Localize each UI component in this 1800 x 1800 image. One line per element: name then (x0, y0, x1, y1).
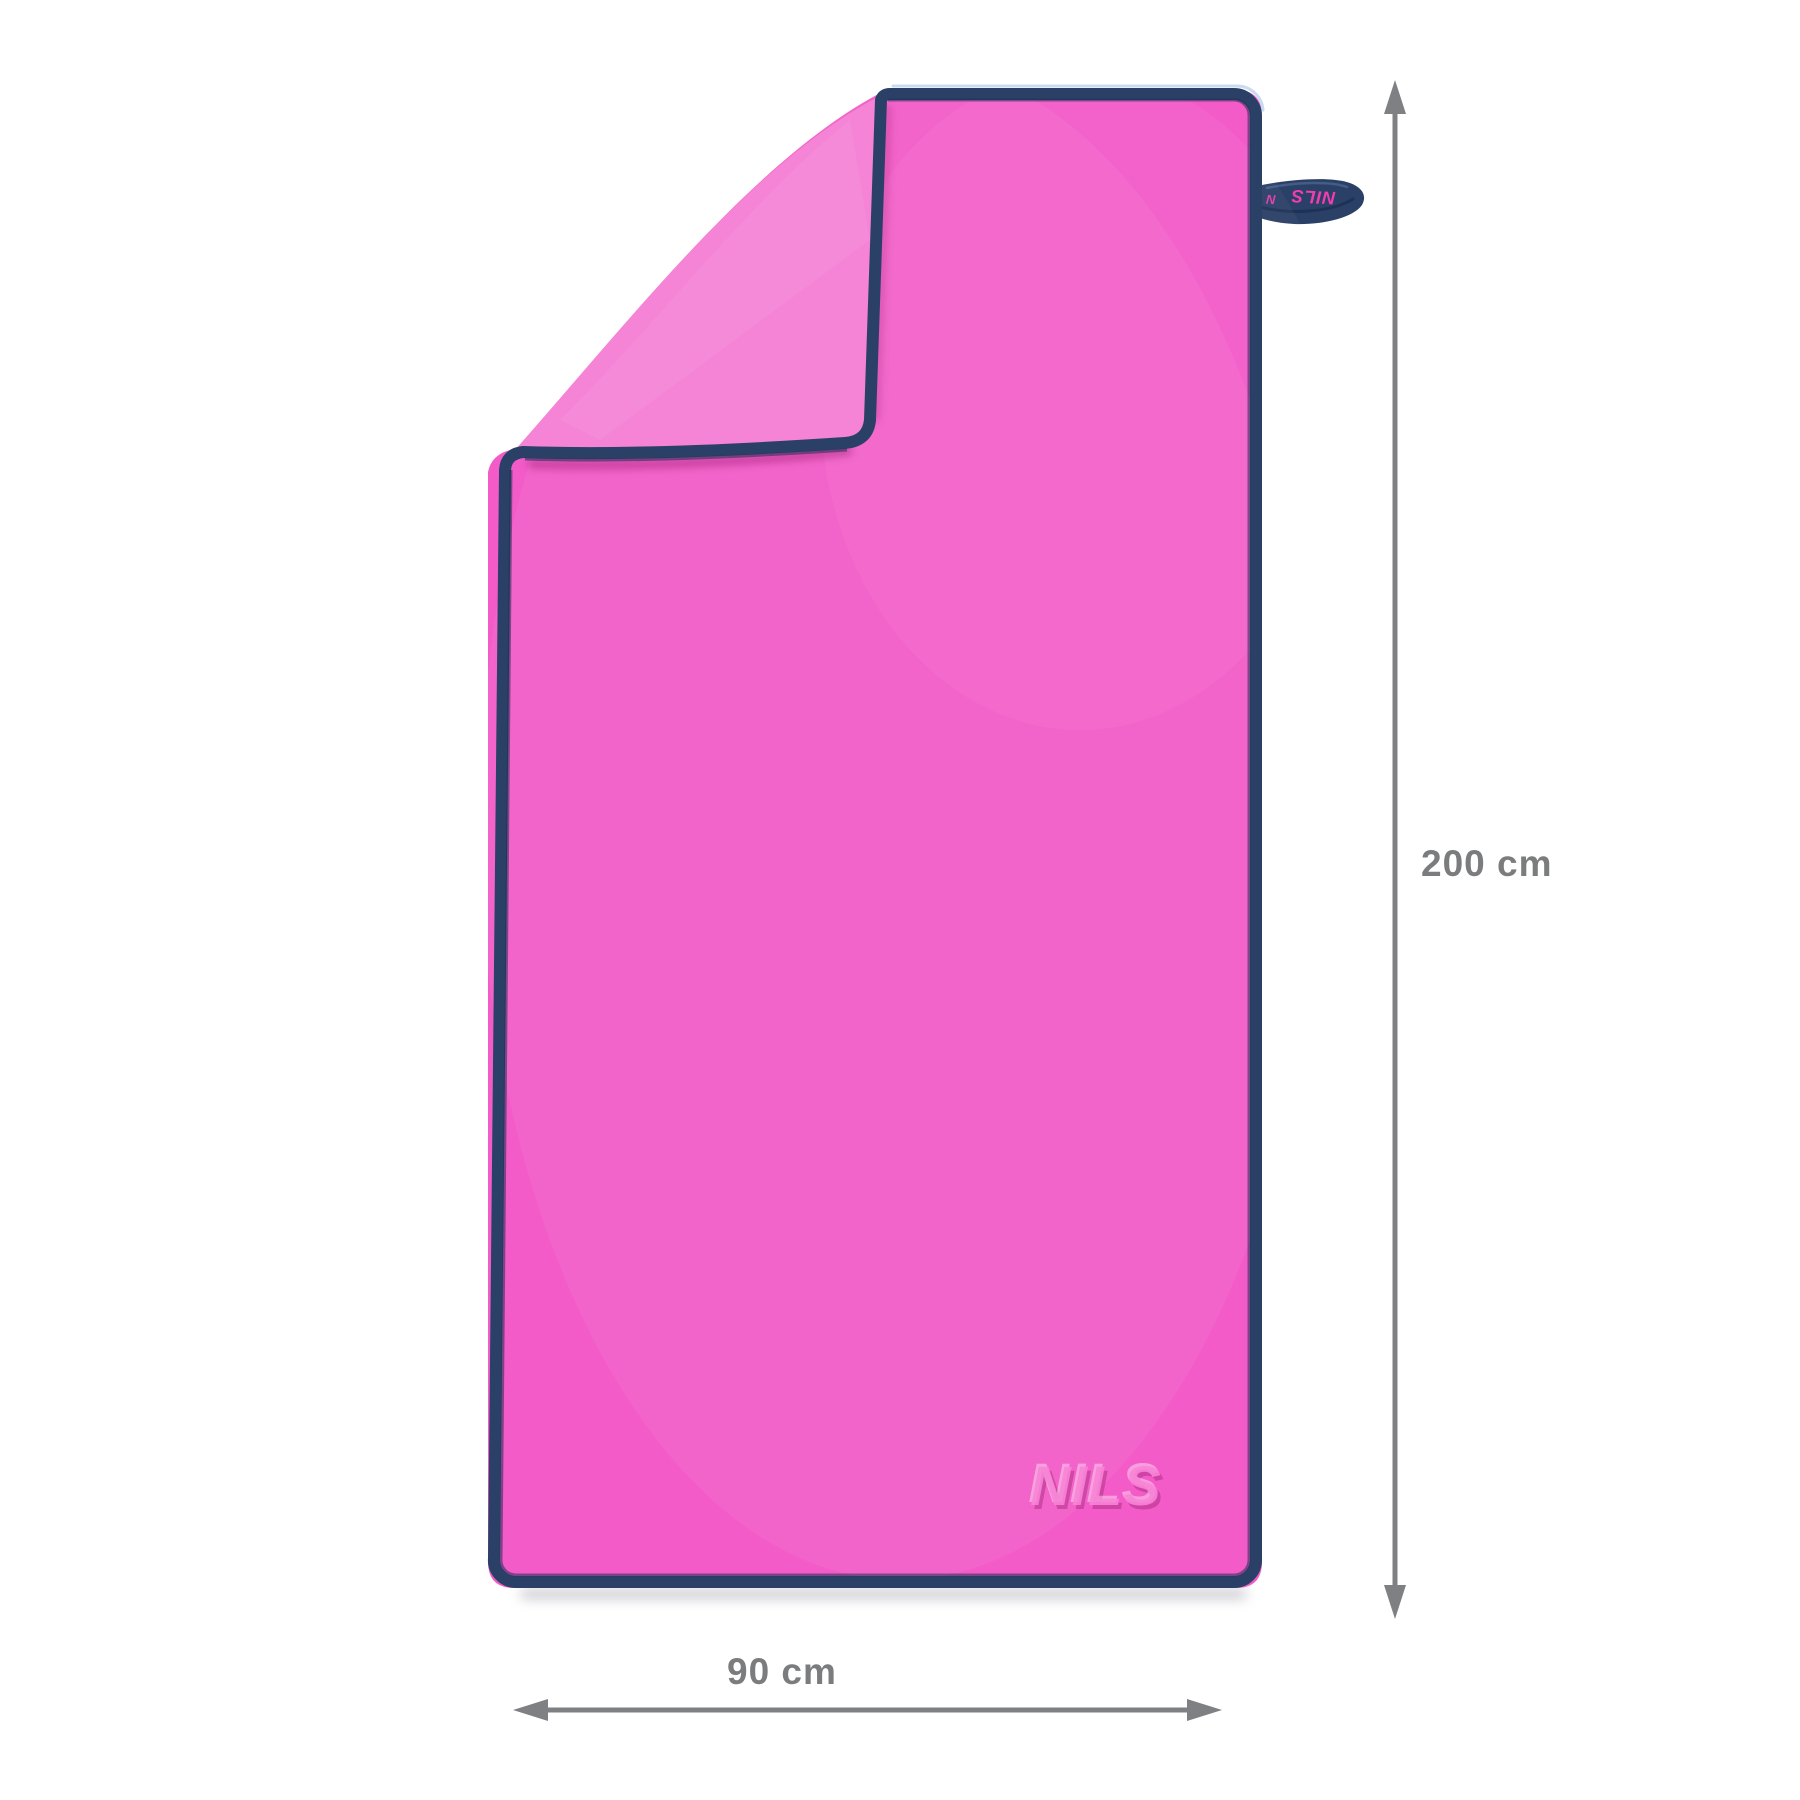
height-arrow-head-bottom (1384, 1585, 1406, 1619)
width-dimension-label: 90 cm (727, 1651, 837, 1693)
width-arrow-icon (513, 1699, 1222, 1721)
width-arrow-head-left (513, 1699, 548, 1721)
width-arrow-head-right (1187, 1699, 1222, 1721)
loop-tag-label: NILS (1290, 186, 1336, 208)
embossed-logo-group: NILS NILS NILS (1028, 1451, 1165, 1521)
towel-graphic: NILS N NILS NILS NILS (0, 0, 1800, 1800)
height-dimension-label: 200 cm (1421, 843, 1553, 885)
height-arrow-icon (1384, 80, 1406, 1619)
product-dimension-illustration: NILS N NILS NILS NILS (0, 0, 1800, 1800)
towel-logo-embossed: NILS (1030, 1454, 1162, 1517)
height-arrow-head-top (1384, 80, 1406, 114)
